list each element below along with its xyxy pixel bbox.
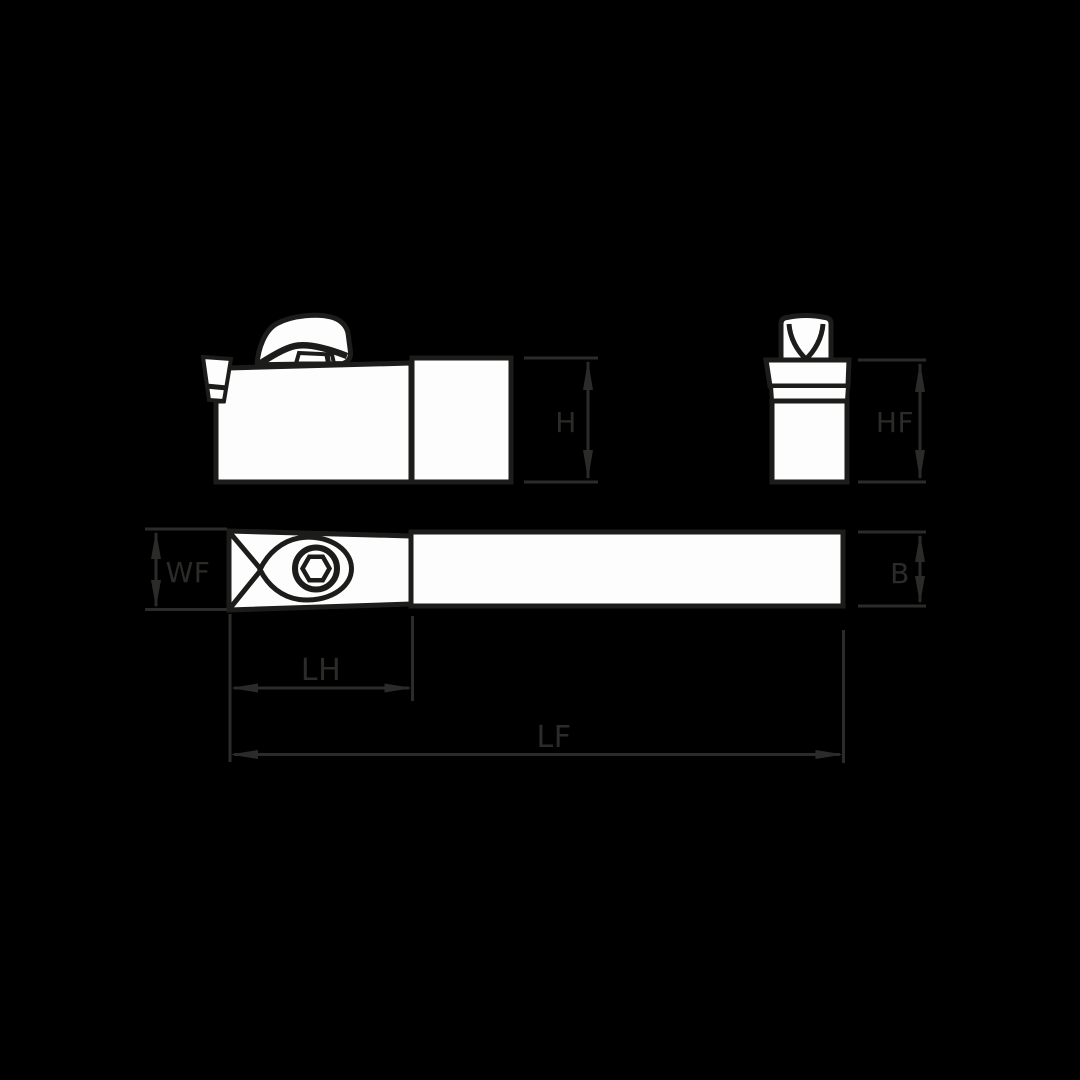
shank-width-label: B: [890, 557, 910, 590]
height-label: H: [555, 406, 577, 439]
functional-length-label: LF: [537, 720, 572, 755]
front-height-label: HF: [876, 406, 914, 439]
end-view-shank: [772, 401, 847, 482]
end-view-clamp-knob: [781, 316, 831, 361]
side-view-insert: [203, 357, 231, 401]
side-view-head-body: [216, 363, 411, 482]
tool-holder-drawing: H HF: [0, 0, 1080, 1080]
head-width-label: WF: [166, 556, 211, 589]
side-view-insert-divider: [206, 386, 227, 388]
head-length-label: LH: [301, 653, 341, 688]
hex-socket: [303, 557, 330, 580]
top-view-shank: [411, 532, 843, 606]
side-view-clamp-notch-divider: [327, 355, 329, 363]
side-view-shank: [412, 358, 511, 482]
top-view: [229, 531, 843, 610]
end-view-head: [766, 360, 849, 386]
